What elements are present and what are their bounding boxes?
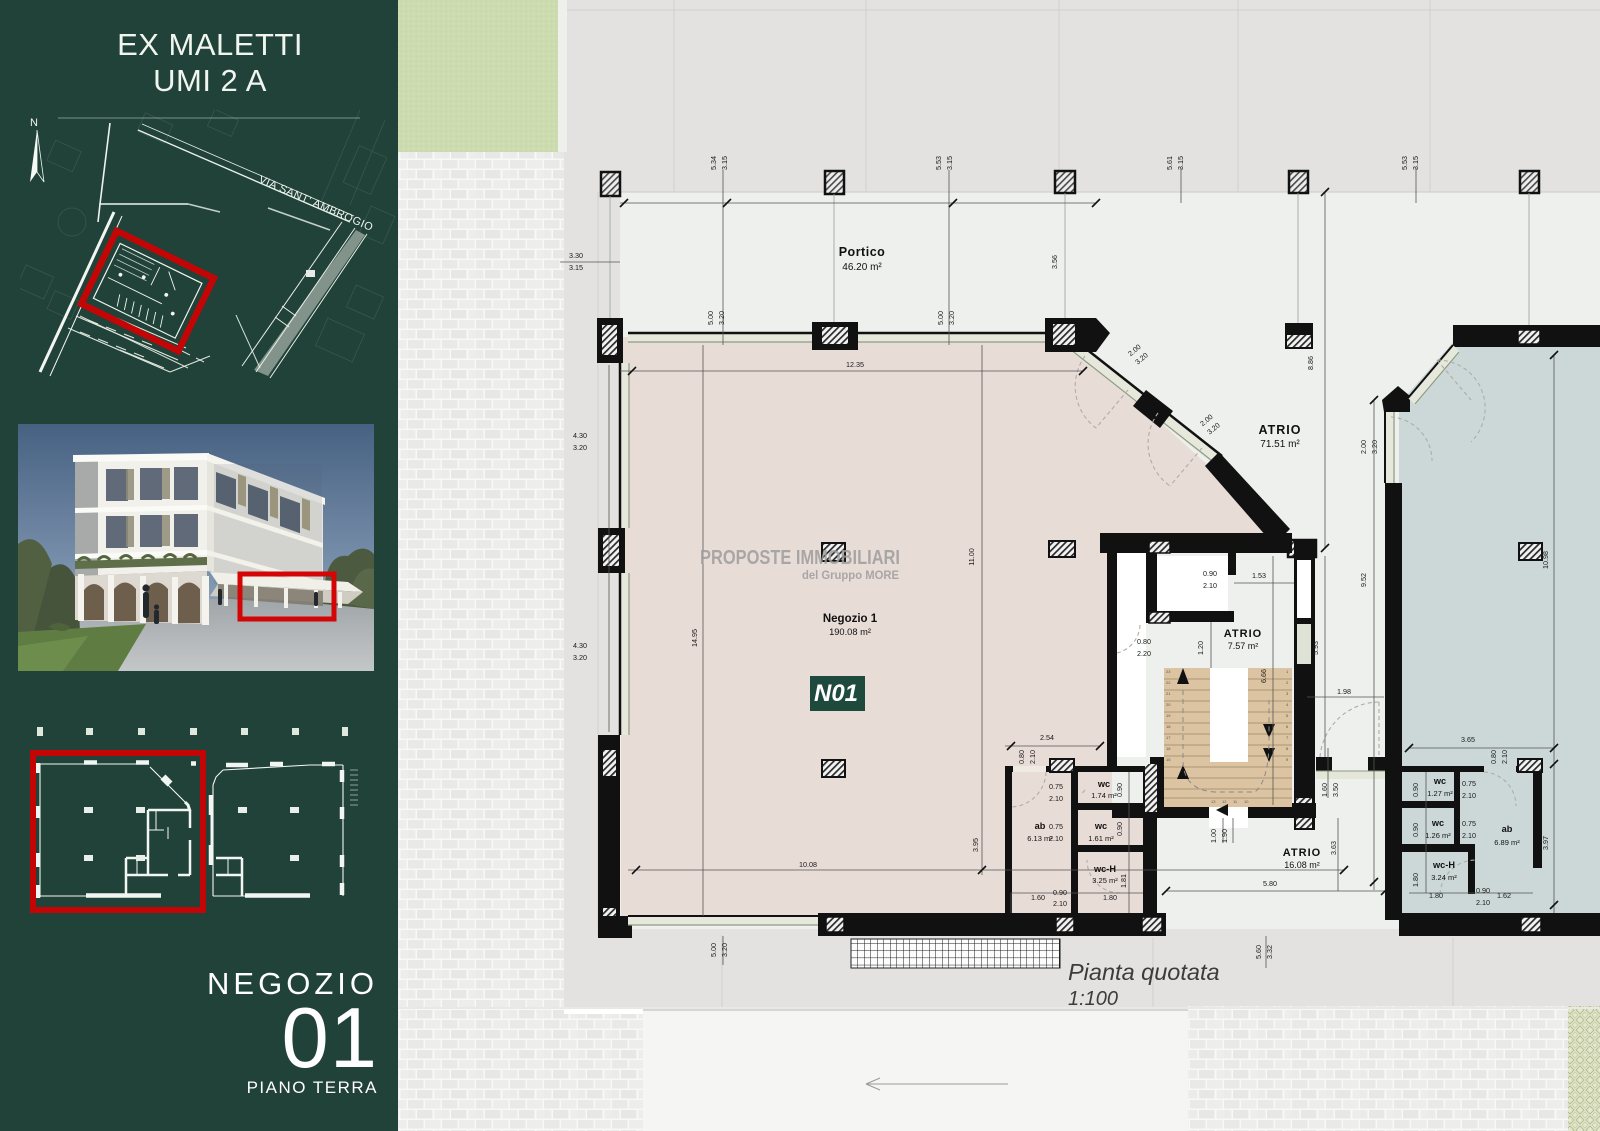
svg-text:5.00: 5.00 [706, 311, 715, 325]
svg-text:0.75: 0.75 [1049, 822, 1063, 831]
svg-text:ab: ab [1502, 824, 1513, 834]
svg-text:0.90: 0.90 [1115, 822, 1124, 836]
svg-text:ATRIO: ATRIO [1224, 628, 1262, 640]
svg-text:3.95: 3.95 [971, 838, 980, 852]
svg-text:1.90: 1.90 [1220, 829, 1229, 843]
svg-text:3.20: 3.20 [573, 443, 587, 452]
svg-text:0.90: 0.90 [1476, 886, 1490, 895]
svg-text:3.32: 3.32 [1265, 945, 1274, 959]
svg-text:3.65: 3.65 [1461, 735, 1475, 744]
svg-text:4.30: 4.30 [573, 641, 587, 650]
svg-text:5.93: 5.93 [1311, 641, 1320, 655]
svg-text:9.52: 9.52 [1359, 573, 1368, 587]
svg-text:0.90: 0.90 [1411, 783, 1420, 797]
svg-text:3.63: 3.63 [1329, 841, 1338, 855]
svg-text:3.50: 3.50 [1331, 783, 1340, 797]
svg-text:0.90: 0.90 [1203, 569, 1217, 578]
svg-text:0.75: 0.75 [1462, 819, 1476, 828]
svg-text:2.10: 2.10 [1028, 750, 1037, 764]
svg-text:6.66: 6.66 [1259, 669, 1268, 683]
svg-text:3.20: 3.20 [947, 311, 956, 325]
svg-text:13: 13 [1211, 799, 1216, 804]
svg-text:3.97: 3.97 [1541, 836, 1550, 850]
svg-text:3.24 m²: 3.24 m² [1431, 873, 1457, 882]
svg-text:3.56: 3.56 [1050, 255, 1059, 269]
svg-text:wc: wc [1431, 818, 1444, 828]
svg-text:1.60: 1.60 [1031, 893, 1045, 902]
svg-text:5.60: 5.60 [1254, 945, 1263, 959]
svg-text:7.57 m²: 7.57 m² [1228, 641, 1259, 651]
svg-text:1:100: 1:100 [1068, 988, 1118, 1010]
svg-text:PROPOSTE IMMOBILIARI: PROPOSTE IMMOBILIARI [700, 547, 900, 569]
svg-text:2.00: 2.00 [1359, 440, 1368, 454]
svg-text:1.53: 1.53 [1252, 571, 1266, 580]
svg-text:21: 21 [1166, 691, 1171, 696]
svg-text:0.90: 0.90 [1053, 888, 1067, 897]
svg-text:10: 10 [1244, 799, 1249, 804]
svg-text:3.30: 3.30 [569, 251, 583, 260]
svg-text:1.80: 1.80 [1103, 893, 1117, 902]
svg-text:0.80: 0.80 [1137, 637, 1151, 646]
svg-text:1.62: 1.62 [1497, 891, 1511, 900]
svg-text:wc: wc [1433, 776, 1446, 786]
svg-text:1.20: 1.20 [1196, 641, 1205, 655]
svg-text:2.54: 2.54 [1040, 733, 1054, 742]
svg-text:2.10: 2.10 [1462, 831, 1476, 840]
svg-text:190.08 m²: 190.08 m² [829, 627, 871, 637]
svg-text:1.61 m²: 1.61 m² [1088, 834, 1114, 843]
svg-text:3.20: 3.20 [717, 311, 726, 325]
svg-text:0.90: 0.90 [1411, 823, 1420, 837]
svg-text:N: N [30, 117, 38, 129]
svg-text:14.95: 14.95 [690, 629, 699, 647]
svg-text:wc: wc [1094, 821, 1107, 831]
svg-text:23: 23 [1166, 669, 1171, 674]
svg-text:1.27 m²: 1.27 m² [1427, 789, 1453, 798]
svg-text:3.15: 3.15 [945, 156, 954, 170]
svg-text:Pianta quotata: Pianta quotata [1068, 959, 1220, 985]
svg-text:19: 19 [1166, 713, 1171, 718]
svg-text:15: 15 [1166, 757, 1171, 762]
svg-text:0.75: 0.75 [1462, 779, 1476, 788]
svg-text:5.34: 5.34 [709, 156, 718, 170]
svg-text:10.08: 10.08 [799, 860, 817, 869]
svg-text:11.00: 11.00 [967, 548, 976, 565]
svg-text:ATRIO: ATRIO [1259, 423, 1302, 437]
svg-text:wc-H: wc-H [1432, 860, 1455, 870]
svg-text:6.89 m²: 6.89 m² [1494, 838, 1520, 847]
svg-text:0.80: 0.80 [1489, 750, 1498, 764]
svg-text:1.60: 1.60 [1320, 783, 1329, 797]
svg-text:Portico: Portico [839, 245, 886, 259]
svg-text:5.61: 5.61 [1165, 156, 1174, 170]
svg-text:1.98: 1.98 [1337, 687, 1351, 696]
svg-text:3.20: 3.20 [1370, 440, 1379, 454]
svg-text:1.81: 1.81 [1119, 874, 1128, 888]
svg-text:12: 12 [1222, 799, 1227, 804]
svg-text:1.00: 1.00 [1209, 829, 1218, 843]
svg-text:3.15: 3.15 [1176, 156, 1185, 170]
svg-text:20: 20 [1166, 702, 1171, 707]
svg-text:46.20 m²: 46.20 m² [842, 262, 882, 273]
svg-text:0.80: 0.80 [1017, 750, 1026, 764]
svg-text:12.35: 12.35 [846, 360, 864, 369]
svg-text:N01: N01 [814, 680, 858, 707]
svg-text:0.75: 0.75 [1049, 782, 1063, 791]
svg-text:wc: wc [1097, 779, 1110, 789]
svg-text:1.74 m²: 1.74 m² [1091, 791, 1117, 800]
svg-text:18: 18 [1166, 724, 1171, 729]
svg-text:10.98: 10.98 [1541, 551, 1550, 569]
svg-text:16.08 m²: 16.08 m² [1284, 860, 1320, 870]
svg-text:5.53: 5.53 [934, 156, 943, 170]
svg-text:8.86: 8.86 [1306, 356, 1315, 370]
svg-text:1.26 m²: 1.26 m² [1425, 831, 1451, 840]
svg-text:71.51 m²: 71.51 m² [1260, 439, 1300, 450]
svg-text:2.10: 2.10 [1462, 791, 1476, 800]
svg-text:2.10: 2.10 [1053, 899, 1067, 908]
svg-text:ab: ab [1035, 821, 1046, 831]
svg-text:4.30: 4.30 [573, 431, 587, 440]
svg-text:3.25 m²: 3.25 m² [1092, 876, 1118, 885]
svg-text:3.15: 3.15 [1411, 156, 1420, 170]
svg-text:3.15: 3.15 [720, 156, 729, 170]
svg-text:3.15: 3.15 [569, 263, 583, 272]
svg-text:0.90: 0.90 [1115, 783, 1124, 797]
svg-text:Negozio 1: Negozio 1 [823, 613, 878, 625]
svg-text:5.80: 5.80 [1263, 879, 1277, 888]
svg-text:5.00: 5.00 [936, 311, 945, 325]
svg-text:17: 17 [1166, 735, 1171, 740]
svg-text:2.10: 2.10 [1203, 581, 1217, 590]
svg-text:1.80: 1.80 [1411, 873, 1420, 887]
svg-text:16: 16 [1166, 746, 1171, 751]
svg-text:2.10: 2.10 [1049, 834, 1063, 843]
svg-text:5.00: 5.00 [709, 943, 718, 957]
svg-text:3.20: 3.20 [573, 653, 587, 662]
svg-text:wc-H: wc-H [1093, 864, 1116, 874]
svg-text:1.80: 1.80 [1429, 891, 1443, 900]
svg-text:22: 22 [1166, 680, 1171, 685]
svg-text:ATRIO: ATRIO [1283, 847, 1321, 859]
svg-text:5.53: 5.53 [1400, 156, 1409, 170]
svg-text:2.10: 2.10 [1500, 750, 1509, 764]
svg-text:3.20: 3.20 [720, 943, 729, 957]
svg-text:2.20: 2.20 [1137, 649, 1151, 658]
svg-text:2.10: 2.10 [1049, 794, 1063, 803]
svg-text:del Gruppo MORE: del Gruppo MORE [802, 568, 899, 582]
svg-text:2.10: 2.10 [1476, 898, 1490, 907]
